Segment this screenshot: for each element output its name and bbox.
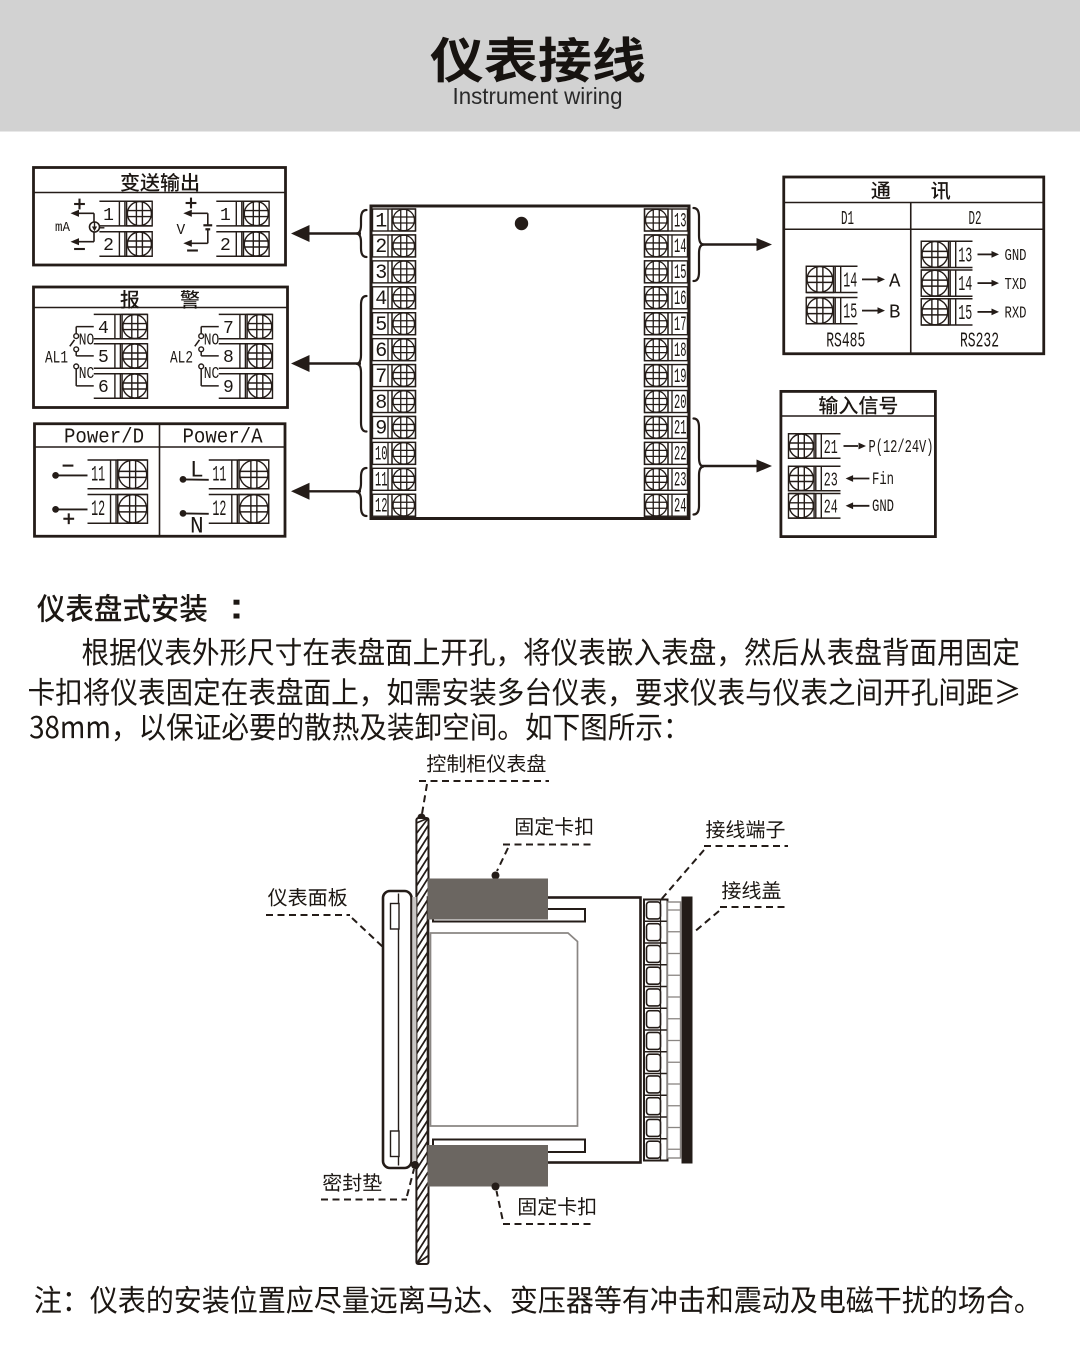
- svg-text:Power/A: Power/A: [183, 427, 263, 450]
- svg-text:15: 15: [674, 262, 687, 285]
- svg-text:11: 11: [91, 463, 105, 488]
- svg-text:4: 4: [98, 319, 109, 339]
- svg-text:20: 20: [674, 392, 687, 415]
- svg-text:GND: GND: [872, 498, 894, 517]
- svg-text:17: 17: [674, 314, 687, 337]
- svg-text:GND: GND: [1005, 247, 1027, 266]
- svg-text:15: 15: [958, 303, 972, 326]
- svg-text:B: B: [889, 302, 900, 324]
- svg-text:14: 14: [843, 270, 857, 293]
- svg-text:21: 21: [674, 418, 687, 441]
- svg-text:AL2: AL2: [170, 348, 193, 368]
- svg-text:Power/D: Power/D: [64, 427, 144, 450]
- svg-text:NO: NO: [204, 331, 220, 350]
- svg-text:6: 6: [98, 378, 109, 398]
- svg-text:3: 3: [375, 262, 387, 285]
- svg-text:D1: D1: [841, 208, 854, 230]
- svg-text:NO: NO: [79, 331, 95, 350]
- svg-text:RXD: RXD: [1005, 305, 1027, 324]
- svg-text:P(12/24V): P(12/24V): [869, 436, 934, 458]
- svg-text:15: 15: [843, 302, 857, 325]
- svg-text:2: 2: [103, 236, 114, 256]
- svg-text:24: 24: [824, 497, 838, 519]
- svg-text:1: 1: [103, 206, 114, 226]
- svg-text:Fin: Fin: [872, 471, 894, 490]
- svg-text:NC: NC: [204, 364, 220, 383]
- svg-text:L: L: [190, 458, 204, 484]
- svg-text:RS232: RS232: [960, 330, 999, 353]
- svg-text:11: 11: [212, 463, 226, 488]
- svg-text:14: 14: [674, 236, 687, 259]
- svg-text:16: 16: [674, 288, 687, 311]
- svg-text:D2: D2: [969, 208, 982, 230]
- svg-text:N: N: [190, 513, 204, 539]
- svg-text:8: 8: [375, 392, 387, 415]
- svg-text:23: 23: [674, 470, 687, 493]
- svg-text:9: 9: [223, 378, 234, 398]
- svg-text:12: 12: [212, 497, 226, 522]
- svg-text:TXD: TXD: [1005, 276, 1027, 295]
- svg-text:13: 13: [958, 245, 972, 268]
- svg-text:24: 24: [674, 496, 687, 519]
- svg-text:14: 14: [958, 274, 972, 297]
- svg-text:2: 2: [220, 236, 231, 256]
- svg-text:1: 1: [375, 210, 387, 233]
- svg-text:18: 18: [674, 340, 687, 363]
- svg-text:mA: mA: [55, 220, 71, 236]
- svg-text:V: V: [177, 223, 186, 239]
- svg-text:4: 4: [375, 288, 387, 311]
- svg-text:RS485: RS485: [826, 330, 865, 353]
- svg-text:NC: NC: [79, 364, 95, 383]
- svg-text:21: 21: [824, 437, 838, 459]
- svg-text:10: 10: [375, 444, 388, 467]
- svg-text:7: 7: [223, 319, 234, 339]
- svg-text:11: 11: [375, 470, 388, 493]
- svg-text:8: 8: [223, 348, 234, 368]
- svg-text:AL1: AL1: [45, 348, 68, 368]
- svg-text:7: 7: [375, 366, 387, 389]
- svg-text:2: 2: [375, 236, 387, 259]
- svg-text:22: 22: [674, 444, 687, 467]
- svg-text:Instrument wiring: Instrument wiring: [453, 83, 623, 109]
- svg-text:12: 12: [91, 497, 105, 522]
- svg-text:A: A: [889, 270, 901, 292]
- svg-text:5: 5: [375, 314, 387, 337]
- svg-text:19: 19: [674, 366, 687, 389]
- svg-text:13: 13: [674, 210, 687, 233]
- svg-text:23: 23: [824, 469, 838, 491]
- svg-text:9: 9: [375, 418, 387, 441]
- svg-text:1: 1: [220, 206, 231, 226]
- svg-text:12: 12: [375, 496, 388, 519]
- svg-text:5: 5: [98, 348, 109, 368]
- svg-text:6: 6: [375, 340, 387, 363]
